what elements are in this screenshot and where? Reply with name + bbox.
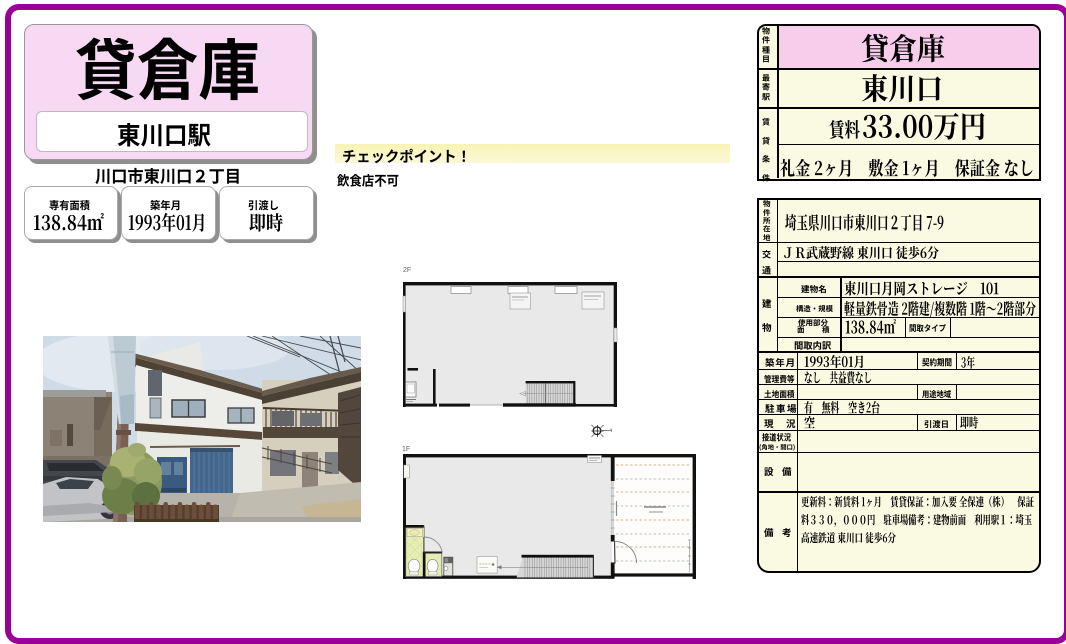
svg-text:1F: 1F [402,446,410,453]
svg-text:2F: 2F [403,267,411,274]
